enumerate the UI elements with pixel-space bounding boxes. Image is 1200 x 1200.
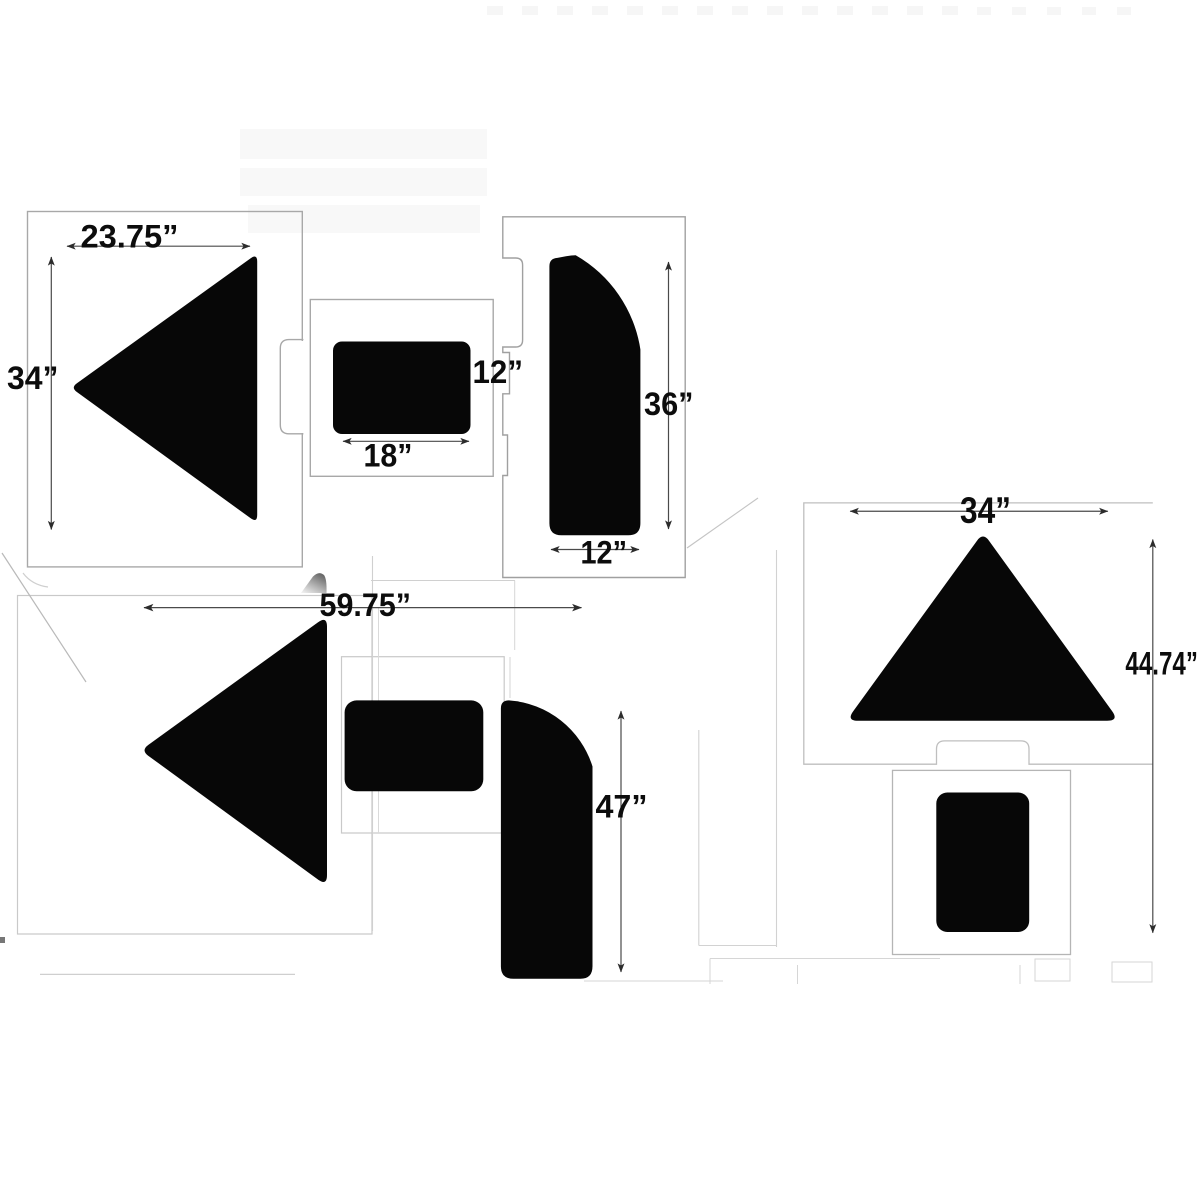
svg-text:12”: 12” [473, 354, 524, 390]
svg-text:34”: 34” [960, 490, 1011, 531]
svg-text:36”: 36” [644, 386, 694, 422]
svg-text:34”: 34” [7, 360, 59, 396]
svg-text:18”: 18” [364, 438, 413, 474]
svg-text:44.74”: 44.74” [1125, 646, 1198, 682]
svg-text:59.75”: 59.75” [320, 587, 412, 623]
svg-text:47”: 47” [596, 789, 648, 825]
svg-text:23.75”: 23.75” [81, 219, 179, 255]
svg-text:12”: 12” [581, 535, 628, 571]
